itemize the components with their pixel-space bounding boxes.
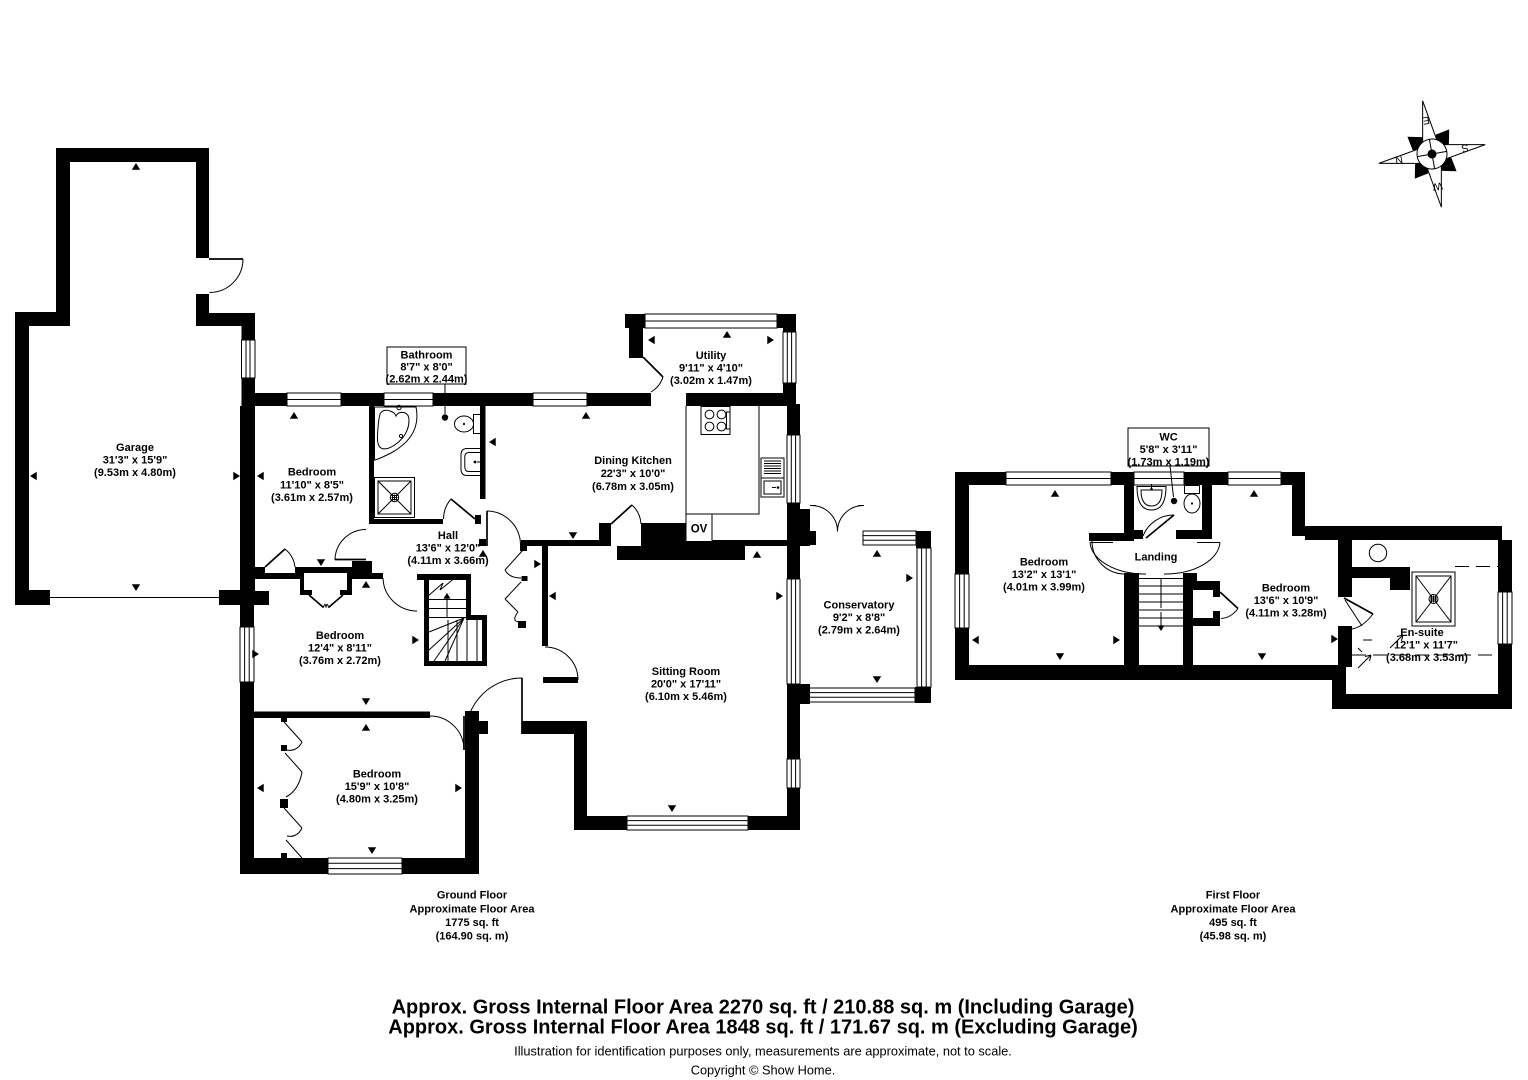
svg-text:31'3" x 15'9": 31'3" x 15'9" xyxy=(103,455,168,467)
svg-text:8'7" x 8'0": 8'7" x 8'0" xyxy=(400,362,452,374)
svg-text:Ground Floor: Ground Floor xyxy=(437,890,508,902)
svg-text:First Floor: First Floor xyxy=(1206,890,1261,902)
svg-text:11'10" x 8'5": 11'10" x 8'5" xyxy=(280,479,344,491)
svg-text:9'11" x 4'10": 9'11" x 4'10" xyxy=(679,363,743,375)
svg-text:Sitting Room: Sitting Room xyxy=(652,666,721,678)
svg-text:(3.68m x 3.53m): (3.68m x 3.53m) xyxy=(1386,652,1468,664)
svg-text:(4.11m x 3.66m): (4.11m x 3.66m) xyxy=(407,555,489,567)
svg-text:13'6" x 10'9": 13'6" x 10'9" xyxy=(1254,595,1319,607)
svg-text:Copyright © Show Home.: Copyright © Show Home. xyxy=(691,1063,836,1078)
svg-text:(2.62m x 2.44m): (2.62m x 2.44m) xyxy=(386,374,468,386)
svg-text:Bedroom: Bedroom xyxy=(353,768,402,780)
svg-text:20'0" x 17'11": 20'0" x 17'11" xyxy=(651,679,721,691)
svg-text:(164.90 sq. m): (164.90 sq. m) xyxy=(436,930,509,942)
svg-text:Hall: Hall xyxy=(438,530,458,542)
svg-text:(4.80m x 3.25m): (4.80m x 3.25m) xyxy=(336,794,418,806)
svg-text:(45.98 sq. m): (45.98 sq. m) xyxy=(1200,930,1267,942)
svg-text:1775 sq. ft: 1775 sq. ft xyxy=(445,917,499,929)
svg-text:Landing: Landing xyxy=(1135,552,1178,564)
svg-text:13'6" x 12'0": 13'6" x 12'0" xyxy=(416,543,481,555)
svg-text:Garage: Garage xyxy=(116,442,154,454)
svg-text:(4.01m x 3.99m): (4.01m x 3.99m) xyxy=(1003,582,1085,594)
svg-text:(6.78m x 3.05m): (6.78m x 3.05m) xyxy=(592,481,674,493)
svg-text:12'1" x 11'7": 12'1" x 11'7" xyxy=(1394,640,1458,652)
svg-text:5'8" x 3'11": 5'8" x 3'11" xyxy=(1140,444,1198,456)
svg-text:WC: WC xyxy=(1159,432,1177,444)
svg-text:Dining Kitchen: Dining Kitchen xyxy=(594,455,672,467)
svg-text:(9.53m x 4.80m): (9.53m x 4.80m) xyxy=(94,467,176,479)
svg-text:Bedroom: Bedroom xyxy=(1020,557,1069,569)
svg-text:13'2" x 13'1": 13'2" x 13'1" xyxy=(1012,569,1077,581)
svg-text:(4.11m x 3.28m): (4.11m x 3.28m) xyxy=(1245,608,1327,620)
svg-text:(2.79m x 2.64m): (2.79m x 2.64m) xyxy=(818,625,900,637)
svg-text:(1.73m x 1.19m): (1.73m x 1.19m) xyxy=(1128,457,1210,469)
svg-text:495 sq. ft: 495 sq. ft xyxy=(1209,917,1257,929)
svg-text:Approx. Gross Internal Floor A: Approx. Gross Internal Floor Area 1848 s… xyxy=(388,1017,1137,1039)
svg-text:Bedroom: Bedroom xyxy=(288,467,337,479)
svg-text:Approximate Floor Area: Approximate Floor Area xyxy=(410,904,536,916)
svg-text:9'2" x 8'8": 9'2" x 8'8" xyxy=(833,612,885,624)
svg-text:(3.02m x 1.47m): (3.02m x 1.47m) xyxy=(670,375,752,387)
svg-text:Approximate Floor Area: Approximate Floor Area xyxy=(1171,904,1297,916)
svg-text:22'3" x 10'0": 22'3" x 10'0" xyxy=(601,468,666,480)
svg-text:Approx. Gross Internal Floor A: Approx. Gross Internal Floor Area 2270 s… xyxy=(392,997,1135,1019)
svg-text:Conservatory: Conservatory xyxy=(824,600,896,612)
svg-text:Bedroom: Bedroom xyxy=(316,630,365,642)
svg-text:OV: OV xyxy=(691,524,708,536)
svg-text:15'9" x 10'8": 15'9" x 10'8" xyxy=(345,781,410,793)
svg-text:12'4" x 8'11": 12'4" x 8'11" xyxy=(308,643,372,655)
svg-text:Utility: Utility xyxy=(696,350,727,362)
svg-text:(6.10m x 5.46m): (6.10m x 5.46m) xyxy=(645,691,727,703)
svg-text:Bedroom: Bedroom xyxy=(1262,583,1311,595)
svg-text:(3.61m x 2.57m): (3.61m x 2.57m) xyxy=(271,492,353,504)
svg-text:En-suite: En-suite xyxy=(1400,627,1443,639)
svg-text:(3.76m x 2.72m): (3.76m x 2.72m) xyxy=(299,655,381,667)
svg-text:Bathroom: Bathroom xyxy=(401,350,453,362)
svg-text:Illustration for identificatio: Illustration for identification purposes… xyxy=(514,1044,1012,1059)
